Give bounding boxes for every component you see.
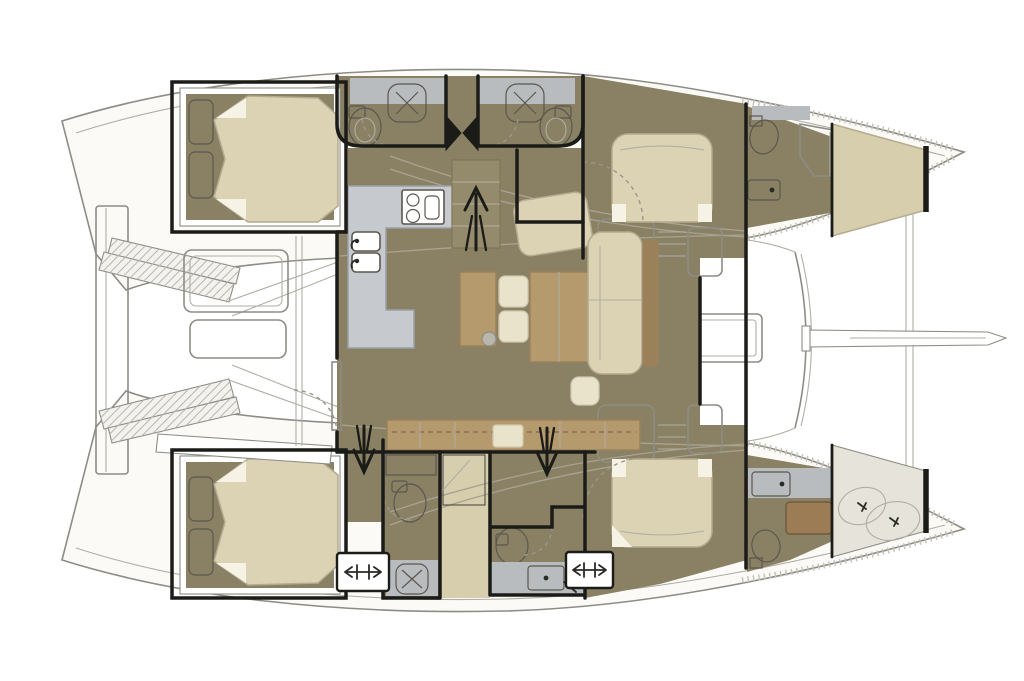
sofa — [588, 232, 642, 374]
faucet-dot — [780, 482, 785, 487]
faucet-dot — [355, 259, 359, 263]
faucet-dot — [355, 239, 359, 243]
faucet-dot — [770, 188, 775, 193]
pedestal-leg — [482, 332, 496, 346]
sofa-back — [643, 240, 658, 366]
vanity-counter — [350, 78, 447, 104]
stove-icon — [402, 190, 444, 224]
double-bed-mattress — [612, 134, 712, 222]
floor-plan-canvas — [0, 0, 1024, 681]
shower-tray — [786, 502, 832, 534]
bottom-bunk-cabin-floor — [440, 452, 490, 598]
seat-cushion — [499, 311, 528, 342]
stool — [571, 377, 599, 405]
hatch-icon — [566, 552, 613, 588]
aft-cabin-bottom — [180, 456, 340, 594]
sideboard-hatch — [493, 425, 523, 447]
vanity-counter — [478, 78, 575, 104]
sheet-fold — [698, 204, 712, 222]
aft-cabin-top — [180, 88, 340, 226]
counter — [752, 106, 810, 120]
sheet-fold — [698, 459, 712, 477]
double-bed-mattress — [612, 459, 712, 547]
bowsprit-base — [802, 326, 810, 351]
sheet-fold — [612, 204, 626, 222]
hatch-icon — [337, 553, 389, 591]
seat-cushion — [499, 276, 528, 307]
faucet-dot — [544, 576, 549, 581]
catamaran-floor-plan — [0, 0, 1024, 681]
shower-pan — [386, 560, 438, 596]
